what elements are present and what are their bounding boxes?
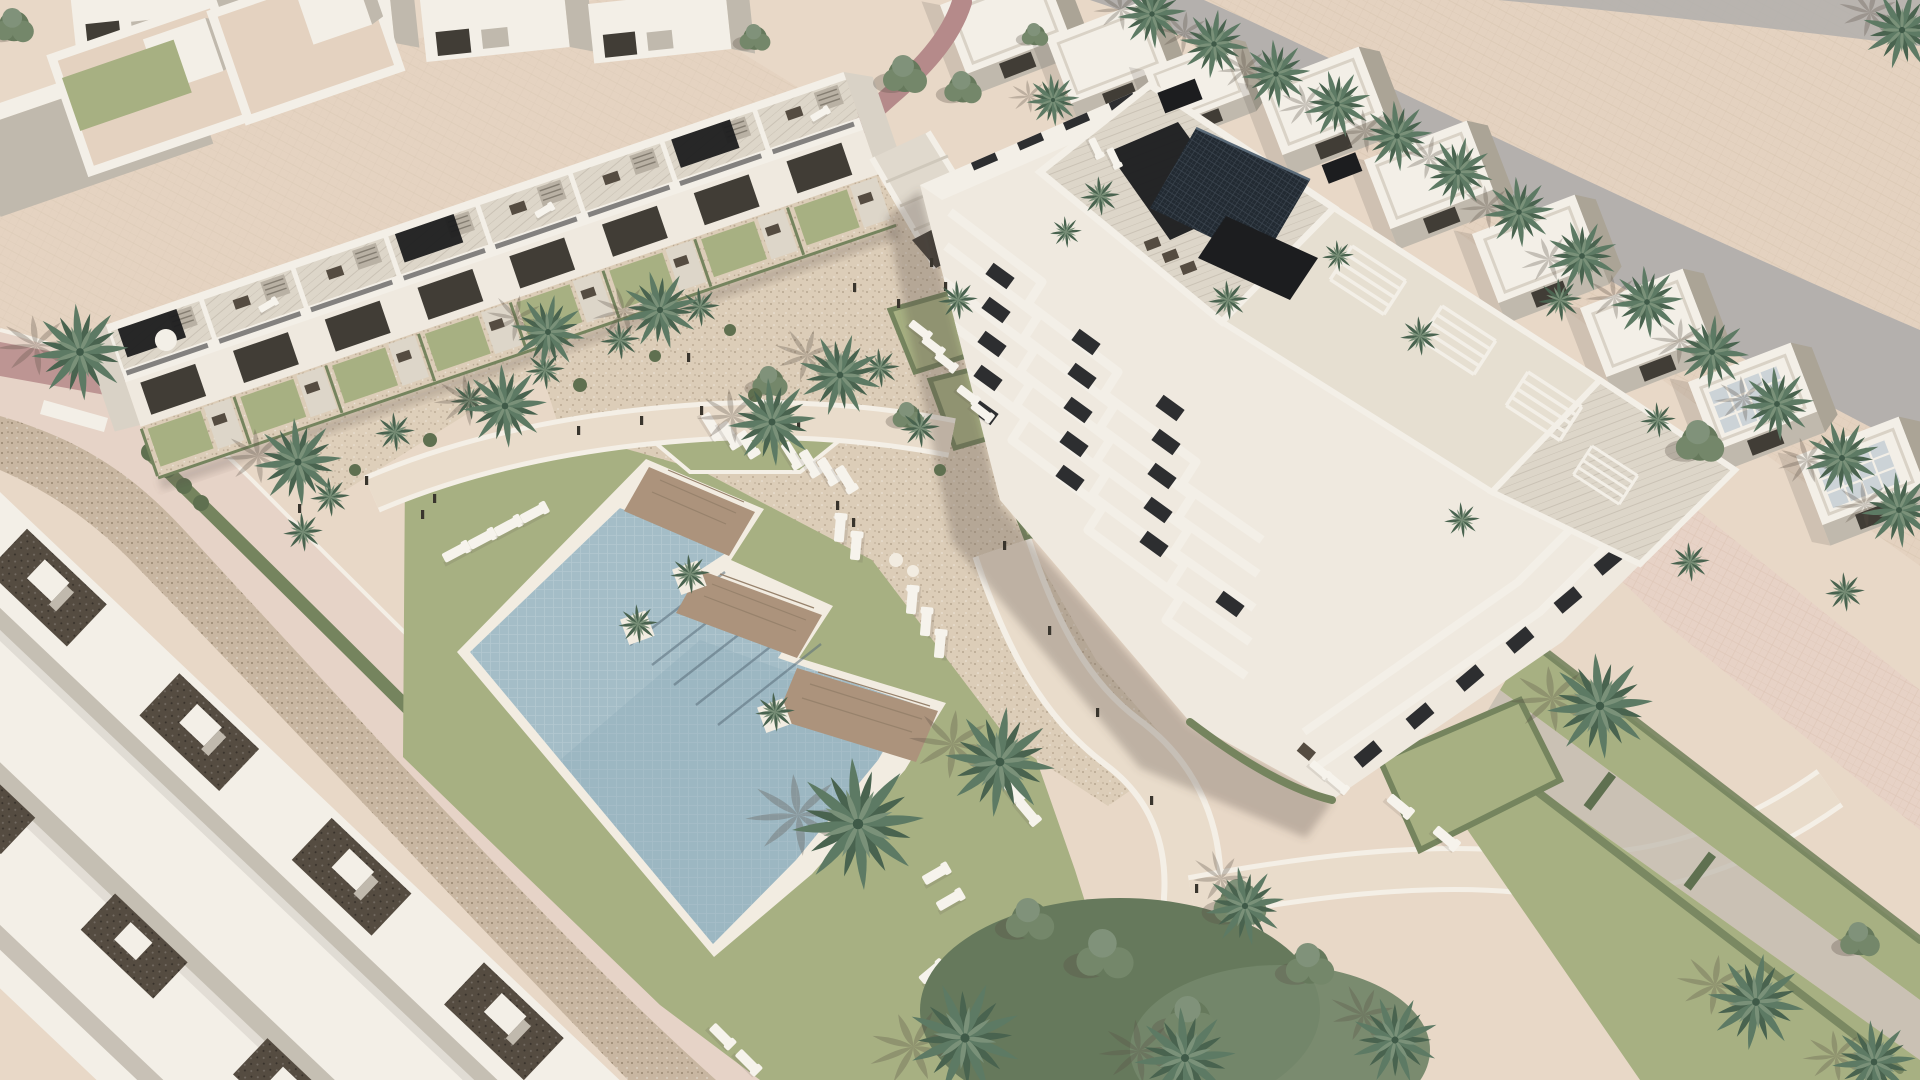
render-viewport bbox=[0, 0, 1920, 1080]
aerial-render bbox=[0, 0, 1920, 1080]
